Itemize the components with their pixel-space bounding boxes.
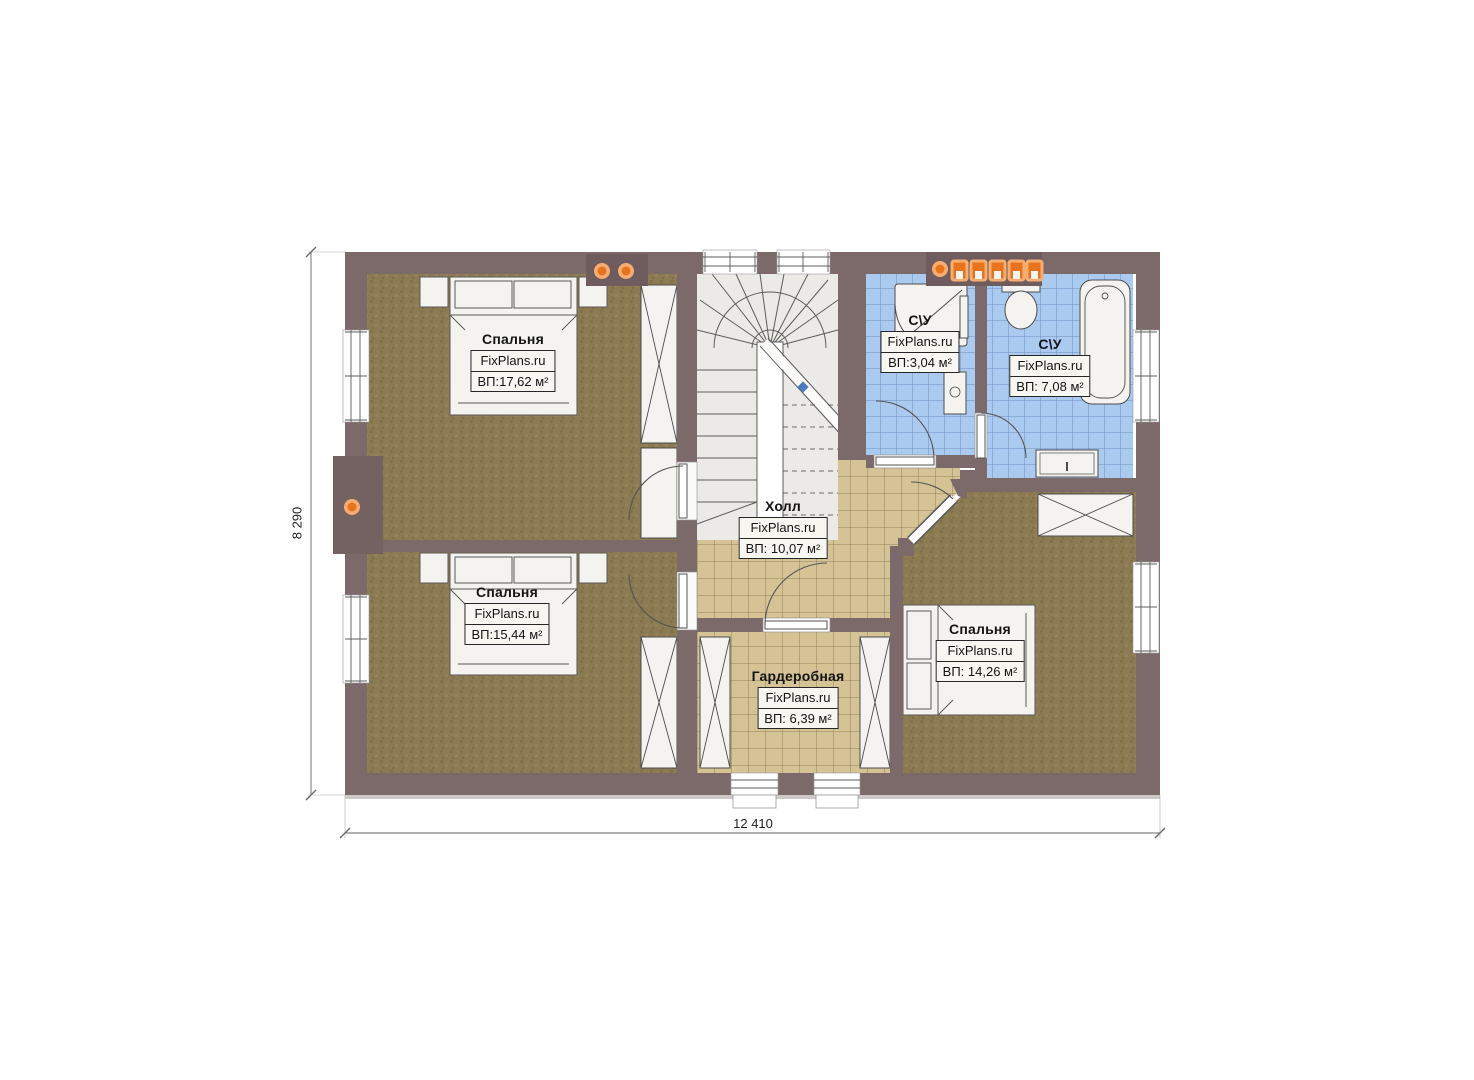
room-label-wardrobe: Гардеробная FixPlans.ru ВП: 6,39 м² <box>752 668 845 729</box>
closet-x-icon <box>700 637 730 768</box>
wall-stairwell <box>838 274 866 460</box>
pillow-icon <box>907 611 931 659</box>
room-name: Спальня <box>949 621 1011 637</box>
watermark-text: FixPlans.ru <box>937 641 1024 662</box>
room-area: ВП:3,04 м² <box>881 353 958 373</box>
room-area: ВП: 14,26 м² <box>937 662 1024 682</box>
room-name: С\У <box>1038 336 1061 352</box>
watermark-text: FixPlans.ru <box>1010 356 1089 377</box>
wall-interior <box>677 520 697 572</box>
room-name: С\У <box>908 312 931 328</box>
room-label-bedroom-top-left: Спальня FixPlans.ru ВП:17,62 м² <box>470 331 555 392</box>
room-info-box: FixPlans.ru ВП:3,04 м² <box>880 331 959 373</box>
room-label-bedroom-bottom-left: Спальня FixPlans.ru ВП:15,44 м² <box>464 584 549 645</box>
watermark-text: FixPlans.ru <box>881 332 958 353</box>
window-sill <box>733 795 776 808</box>
room-info-box: FixPlans.ru ВП: 14,26 м² <box>936 640 1025 682</box>
room-name: Гардеробная <box>752 668 845 684</box>
wall-interior <box>697 618 763 632</box>
wall-interior <box>830 618 903 632</box>
wall-interior <box>975 274 987 413</box>
pillow-icon <box>514 557 571 583</box>
room-name: Спальня <box>476 584 538 600</box>
room-info-box: FixPlans.ru ВП:17,62 м² <box>470 350 555 392</box>
room-info-box: FixPlans.ru ВП: 6,39 м² <box>757 687 838 729</box>
flue-stack-icon <box>990 261 1005 280</box>
window-icon <box>343 595 369 683</box>
room-name: Спальня <box>482 331 544 347</box>
nightstand-icon <box>420 277 448 307</box>
closet-plain <box>641 448 677 538</box>
flue-stack-icon <box>971 261 986 280</box>
room-label-hall: Холл FixPlans.ru ВП: 10,07 м² <box>739 498 828 559</box>
pillow-icon <box>907 663 931 709</box>
dimension-width-label: 12 410 <box>733 816 773 831</box>
room-label-bathroom-small: С\У FixPlans.ru ВП:3,04 м² <box>880 312 959 373</box>
pillow-icon <box>455 281 512 308</box>
room-area: ВП:17,62 м² <box>471 372 554 392</box>
room-label-bathroom-large: С\У FixPlans.ru ВП: 7,08 м² <box>1009 336 1090 397</box>
dimension-height-label: 8 290 <box>290 507 305 540</box>
nightstand-icon <box>579 553 607 583</box>
window-icon <box>777 250 830 274</box>
wall-interior <box>987 478 1136 492</box>
window-icon <box>814 773 860 808</box>
wall-interior <box>936 455 975 468</box>
closet-x-icon <box>1038 494 1133 536</box>
pillow-icon <box>455 557 512 583</box>
window-icon <box>1133 562 1159 653</box>
sink-small-icon <box>944 372 966 414</box>
room-area: ВП: 10,07 м² <box>740 539 827 559</box>
room-area: ВП:15,44 м² <box>465 625 548 645</box>
sink-vanity-icon <box>1036 450 1098 477</box>
room-info-box: FixPlans.ru ВП: 10,07 м² <box>739 517 828 559</box>
flue-stack-icon <box>1027 261 1042 280</box>
watermark-text: FixPlans.ru <box>758 688 837 709</box>
wall-interior <box>677 630 697 773</box>
closet-x-icon <box>641 637 677 768</box>
window-icon <box>731 773 778 808</box>
wall-interior <box>890 546 903 773</box>
closet-x-icon <box>641 285 677 443</box>
room-label-bedroom-bottom-right: Спальня FixPlans.ru ВП: 14,26 м² <box>936 621 1025 682</box>
closet-x-icon <box>860 637 890 768</box>
flue-stack-icon <box>952 261 967 280</box>
wall-interior <box>677 274 697 462</box>
watermark-text: FixPlans.ru <box>740 518 827 539</box>
room-name: Холл <box>765 498 801 514</box>
window-icon <box>343 330 369 422</box>
window-sill <box>816 795 858 808</box>
floor-plan-drawing <box>0 0 1474 1080</box>
flue-stack-icon <box>1009 261 1024 280</box>
floor-plan-canvas: Спальня FixPlans.ru ВП:17,62 м² Спальня … <box>0 0 1474 1080</box>
watermark-text: FixPlans.ru <box>471 351 554 372</box>
wall-interior <box>866 455 874 468</box>
window-icon <box>1133 330 1159 422</box>
nightstand-icon <box>420 553 448 583</box>
room-area: ВП: 7,08 м² <box>1010 377 1089 397</box>
pillow-icon <box>514 281 571 308</box>
room-info-box: FixPlans.ru ВП:15,44 м² <box>464 603 549 645</box>
watermark-text: FixPlans.ru <box>465 604 548 625</box>
room-area: ВП: 6,39 м² <box>758 709 837 729</box>
wall-interior <box>367 540 677 552</box>
window-icon <box>703 250 757 274</box>
room-info-box: FixPlans.ru ВП: 7,08 м² <box>1009 355 1090 397</box>
